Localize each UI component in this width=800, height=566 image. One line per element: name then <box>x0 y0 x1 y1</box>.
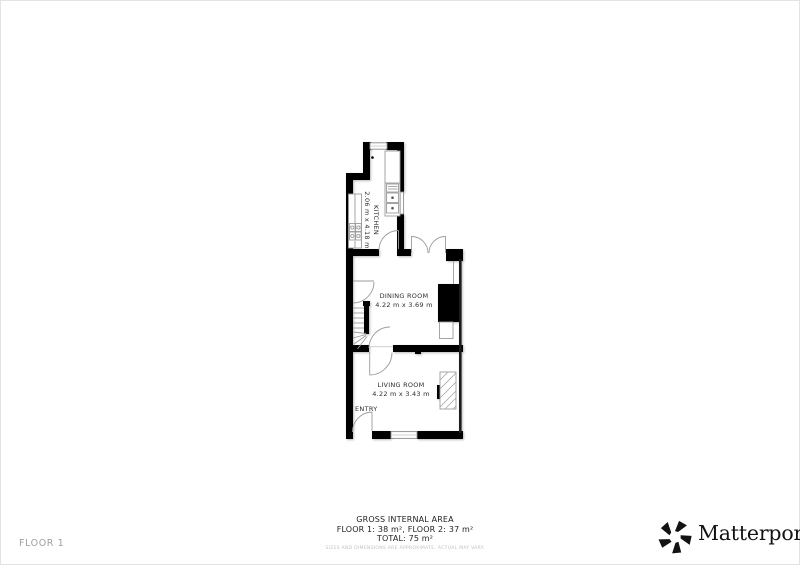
kitchen-door <box>379 231 399 251</box>
room-dimensions: 2.06 m x 4.18 m <box>362 184 371 256</box>
matterport-logo-icon <box>657 519 693 555</box>
room-name: DINING ROOM <box>344 292 464 301</box>
disclaimer-text: SIZES AND DIMENSIONS ARE APPROXIMATE, AC… <box>205 546 605 552</box>
area-total-line: TOTAL: 75 m² <box>205 534 605 544</box>
wall-fixture-dot <box>371 156 374 159</box>
living-room-door <box>369 347 393 375</box>
area-title: GROSS INTERNAL AREA <box>205 515 605 525</box>
room-name: KITCHEN <box>371 184 380 256</box>
stove-icon <box>350 224 362 241</box>
entry-door <box>353 412 373 432</box>
room-name: LIVING ROOM <box>341 381 461 390</box>
matterport-branding: Matterport® <box>657 517 797 557</box>
french-doors <box>412 236 446 253</box>
gross-internal-area-block: GROSS INTERNAL AREA FLOOR 1: 38 m², FLOO… <box>205 515 605 552</box>
stairs-bottom-door <box>369 327 390 348</box>
entry-label: ENTRY <box>355 405 378 413</box>
floorplan-drawing <box>1 1 800 566</box>
kitchen-top-window <box>370 143 387 149</box>
floorplan-page: { "floorplan": { "rooms": [ { "name": "K… <box>0 0 800 565</box>
living-room-window <box>391 432 417 439</box>
room-dimensions: 4.22 m x 3.43 m <box>341 390 461 399</box>
floor-number-label: FLOOR 1 <box>19 538 64 549</box>
room-dimensions: 4.22 m x 3.69 m <box>344 301 464 310</box>
living-room-label: LIVING ROOM 4.22 m x 3.43 m <box>341 381 461 399</box>
area-floors-line: FLOOR 1: 38 m², FLOOR 2: 37 m² <box>205 525 605 535</box>
dining-room-label: DINING ROOM 4.22 m x 3.69 m <box>344 292 464 310</box>
kitchen-room-label: KITCHEN 2.06 m x 4.18 m <box>362 184 380 256</box>
sink-icon <box>387 184 399 213</box>
matterport-wordmark: Matterport® <box>698 520 800 545</box>
